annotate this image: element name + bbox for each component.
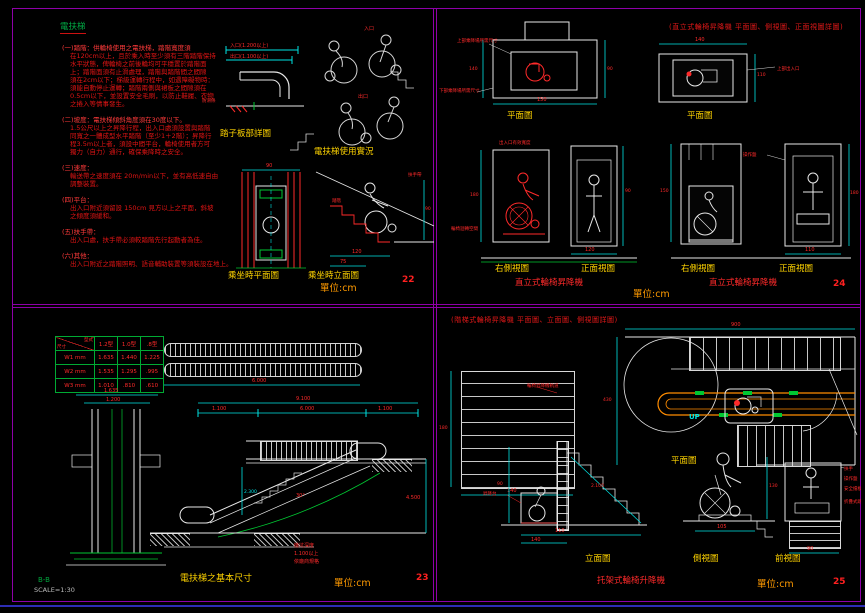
dim-p1-r: 90	[607, 66, 613, 72]
leader-handrail: 扶手帶	[408, 171, 422, 178]
unit-label: 單位:cm	[320, 284, 357, 294]
leader-antislip: 防滑條	[202, 97, 216, 104]
leader-panel: 操作盤	[743, 151, 757, 158]
leader-upper: 上部乘降場所需尺寸	[457, 37, 498, 44]
label-front-b: 正面視圖	[779, 265, 813, 274]
dim-fa-h: 90	[625, 188, 631, 194]
leader-guard: 安全擋板	[844, 485, 861, 492]
leader-platform: 昇降台	[483, 490, 497, 497]
label-basic-dims: 電扶梯之基本尺寸	[180, 575, 252, 584]
dim-stair-w: 140	[507, 488, 517, 494]
dim-height: 4.500	[406, 495, 420, 501]
pit-note-3: 依廠商規格	[294, 558, 319, 565]
dim-left: 1.100	[212, 406, 226, 412]
caption-lift-a: 直立式輪椅昇降機	[515, 279, 583, 288]
dim-rise: 2.300	[244, 489, 257, 495]
dim-p1-l: 140	[469, 66, 478, 72]
dim-el-b: 140	[531, 537, 541, 543]
dim-p2-r: 110	[757, 72, 766, 78]
dim-cs-w: 1.635	[104, 388, 118, 394]
dim-fa-w: 120	[585, 247, 595, 253]
dim-sb-h: 150	[660, 188, 669, 194]
dim-elev-h: 90	[425, 206, 431, 212]
dim-plan-l: 430	[603, 397, 612, 403]
bl-linework[interactable]: 6.000 1.635 1.200 9.100 1.1	[14, 307, 434, 601]
unit-label: 單位:cm	[757, 580, 794, 590]
leader-upper-exit: 上部出入口	[777, 65, 800, 72]
dim-total: 9.100	[296, 396, 310, 402]
leader-turn: 輪椅迴轉空間	[451, 225, 478, 232]
dim-plan-length: 6.000	[252, 378, 266, 384]
dim-exit: 出口(1.100以上)	[230, 53, 268, 60]
label-side-b: 右側視圖	[681, 265, 715, 274]
cad-viewport[interactable]: 電扶梯 (一)踏階：供輪椅使用之電扶梯，踏階寬度須 在120cm以上，且於乘入時…	[0, 0, 865, 613]
dim-el-a: 110	[555, 528, 565, 534]
dim-sv-h: 130	[769, 483, 778, 489]
quadrant-escalator-dimensions: 型式 尺寸 1.2型 1.0型 .8型 W1 mm 1.635 1.440 1.…	[14, 307, 434, 601]
dim-el-h: 90	[497, 481, 503, 487]
pit-note-1: 機坑深度	[294, 542, 314, 549]
leader-armrest: 扶手	[844, 465, 853, 472]
up-direction-text: UP	[689, 413, 700, 421]
label-side-a: 右側視圖	[495, 265, 529, 274]
dim-right: 1.100	[378, 406, 392, 412]
caption-stair-lift: 托架式輪椅升降機	[597, 577, 665, 586]
dim-fv-w: 90	[807, 546, 813, 552]
dim-p1-w: 150	[537, 97, 547, 103]
leader-lower: 下部乘降場所需尺寸	[439, 87, 480, 94]
unit-label: 單位:cm	[633, 290, 670, 300]
dim-fb-w: 110	[805, 247, 815, 253]
label-front-a: 正面視圖	[581, 265, 615, 274]
label-usage: 電扶梯使用實況	[314, 148, 374, 157]
leader-step: 踏階	[332, 197, 341, 204]
label-plan: 平面圖	[671, 457, 697, 466]
divider-horizontal-1	[12, 304, 860, 305]
dim-cs-i: 1.200	[106, 397, 120, 403]
leader-flap: 折疊式踏板	[844, 498, 861, 505]
leader-panel: 操作盤	[844, 475, 858, 482]
label-riding-elev: 乘坐時立面圖	[308, 272, 359, 281]
label-side: 側視圖	[693, 555, 719, 564]
dim-sv-w: 105	[717, 524, 727, 530]
page-number: 23	[416, 574, 429, 583]
quadrant-escalator-usage: 電扶梯 (一)踏階：供輪椅使用之電扶梯，踏階寬度須 在120cm以上，且於乘入時…	[14, 10, 434, 304]
label-step-detail: 踏子板部詳圖	[220, 130, 271, 139]
dim-stair-h: 180	[439, 425, 448, 431]
caption-lift-b: 直立式輪椅昇降機	[709, 279, 777, 288]
label-elev: 立面圖	[585, 555, 611, 564]
dim-sa-h: 180	[470, 192, 479, 198]
page-number: 25	[833, 578, 846, 587]
label-entry-small: 入口	[364, 26, 374, 32]
leader-rail: 輪椅昇降機軌道	[527, 382, 559, 389]
dim-el-slope: 2.100	[591, 483, 604, 489]
dim-plan-width: 90	[266, 163, 272, 169]
page-number: 24	[833, 280, 846, 289]
dim-fb-h: 180	[850, 190, 859, 196]
page-number: 22	[402, 276, 415, 285]
tl-linework[interactable]: 入口(1.200以上) 出口(1.100以上) 防滑條 入口	[14, 10, 434, 304]
scale-label: SCALE=1:30	[34, 587, 75, 594]
dim-elev-a: 75	[340, 259, 346, 265]
quadrant-stair-lift: (階梯式輪椅昇降機 平面圖、立面圖、側視圖詳圖) 140 180 輪椅昇降機軌道	[437, 307, 861, 601]
quadrant-vertical-lift: (直立式輪椅昇降機 平面圖、側視圖、正面視圖詳圖) 140 150 90	[437, 10, 861, 304]
dim-mid: 6.000	[300, 406, 314, 412]
dim-entry: 入口(1.200以上)	[230, 42, 268, 49]
section-mark: B-B	[38, 577, 50, 584]
label-front: 前視圖	[775, 555, 801, 564]
pit-note-2: 1.100以上	[294, 550, 318, 557]
label-exit-small: 出口	[358, 93, 368, 100]
label-plan-a: 平面圖	[507, 112, 533, 121]
label-plan-b: 平面圖	[687, 112, 713, 121]
dim-plan-w: 900	[731, 322, 741, 328]
bottom-blue-line	[0, 605, 865, 607]
unit-label: 單位:cm	[334, 579, 371, 589]
tr-linework[interactable]: 140 150 90 140 110	[437, 10, 861, 304]
dim-angle: 30°	[296, 493, 305, 499]
label-riding-plan: 乘坐時平面圖	[228, 272, 279, 281]
leader-door: 出入口有效寬度	[499, 139, 531, 146]
dim-p2-w: 140	[695, 37, 705, 43]
dim-elev-b: 120	[352, 249, 362, 255]
